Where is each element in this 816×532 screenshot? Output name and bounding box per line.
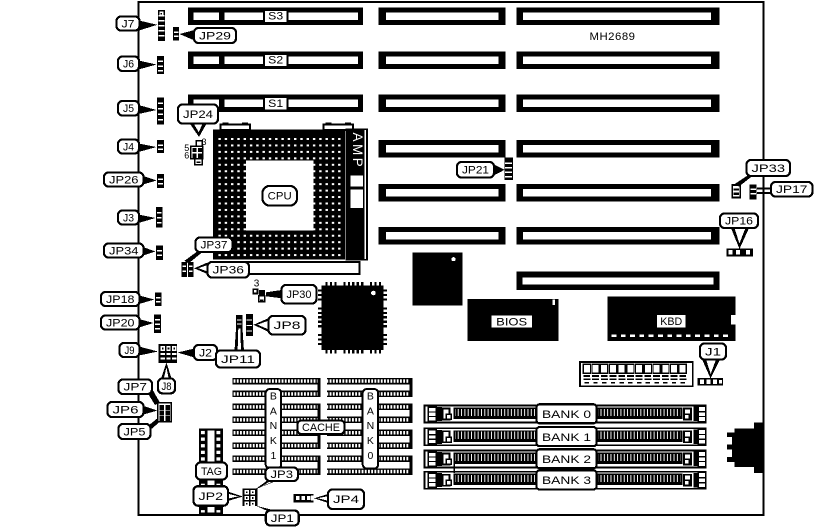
svg-text:J3: J3 [123,212,134,224]
svg-text:N: N [367,420,375,432]
svg-text:K: K [270,435,277,447]
svg-text:A: A [270,405,277,417]
svg-text:J7: J7 [122,18,135,30]
svg-text:JP4: JP4 [333,494,359,506]
svg-text:JP17: JP17 [776,184,808,196]
svg-text:J1: J1 [705,346,721,358]
svg-text:BANK 3: BANK 3 [542,475,591,487]
svg-text:B: B [367,390,374,402]
svg-text:CACHE: CACHE [302,422,340,434]
svg-text:TAG: TAG [201,466,222,478]
svg-text:J4: J4 [123,141,134,153]
svg-text:JP33: JP33 [752,163,786,175]
svg-text:JP26: JP26 [109,174,139,186]
svg-text:JP37: JP37 [201,240,228,252]
svg-text:JP29: JP29 [199,30,231,42]
svg-text:N: N [270,420,278,432]
svg-text:MH2689: MH2689 [590,31,636,43]
svg-text:BANK 1: BANK 1 [542,432,591,444]
svg-text:JP5: JP5 [124,426,146,438]
svg-text:CPU: CPU [268,191,292,203]
svg-text:JP2: JP2 [199,491,224,503]
svg-text:JP3: JP3 [271,469,294,481]
svg-text:K: K [367,435,374,447]
svg-text:JP21: JP21 [462,165,489,177]
svg-text:JP7: JP7 [124,382,148,394]
svg-text:JP8: JP8 [274,320,301,332]
svg-text:JP34: JP34 [109,245,139,257]
svg-text:JP18: JP18 [106,294,135,306]
svg-text:S2: S2 [268,55,283,67]
svg-text:BANK 2: BANK 2 [542,454,591,466]
svg-text:J5: J5 [123,103,134,115]
svg-text:B: B [270,390,277,402]
svg-text:JP1: JP1 [271,513,294,525]
svg-text:J8: J8 [162,381,172,393]
svg-text:BIOS: BIOS [496,316,527,328]
svg-text:KBD: KBD [660,316,682,328]
svg-text:3: 3 [201,137,206,147]
svg-text:6: 6 [184,150,189,160]
svg-text:JP16: JP16 [725,216,753,228]
svg-text:S1: S1 [268,98,283,110]
svg-text:J6: J6 [123,59,134,71]
svg-text:A: A [367,405,374,417]
svg-text:BANK 0: BANK 0 [542,409,591,421]
svg-text:JP36: JP36 [213,265,245,277]
svg-text:3: 3 [254,279,260,290]
svg-text:JP30: JP30 [287,289,312,301]
svg-text:JP11: JP11 [221,354,255,366]
svg-text:JP24: JP24 [183,109,213,121]
svg-text:1: 1 [270,450,276,462]
svg-text:JP20: JP20 [106,317,135,329]
svg-text:J9: J9 [125,345,135,357]
svg-text:0: 0 [367,450,373,462]
svg-text:J2: J2 [199,347,212,359]
svg-text:AMP: AMP [350,133,365,170]
svg-text:S3: S3 [268,11,283,23]
svg-text:JP6: JP6 [113,404,139,416]
